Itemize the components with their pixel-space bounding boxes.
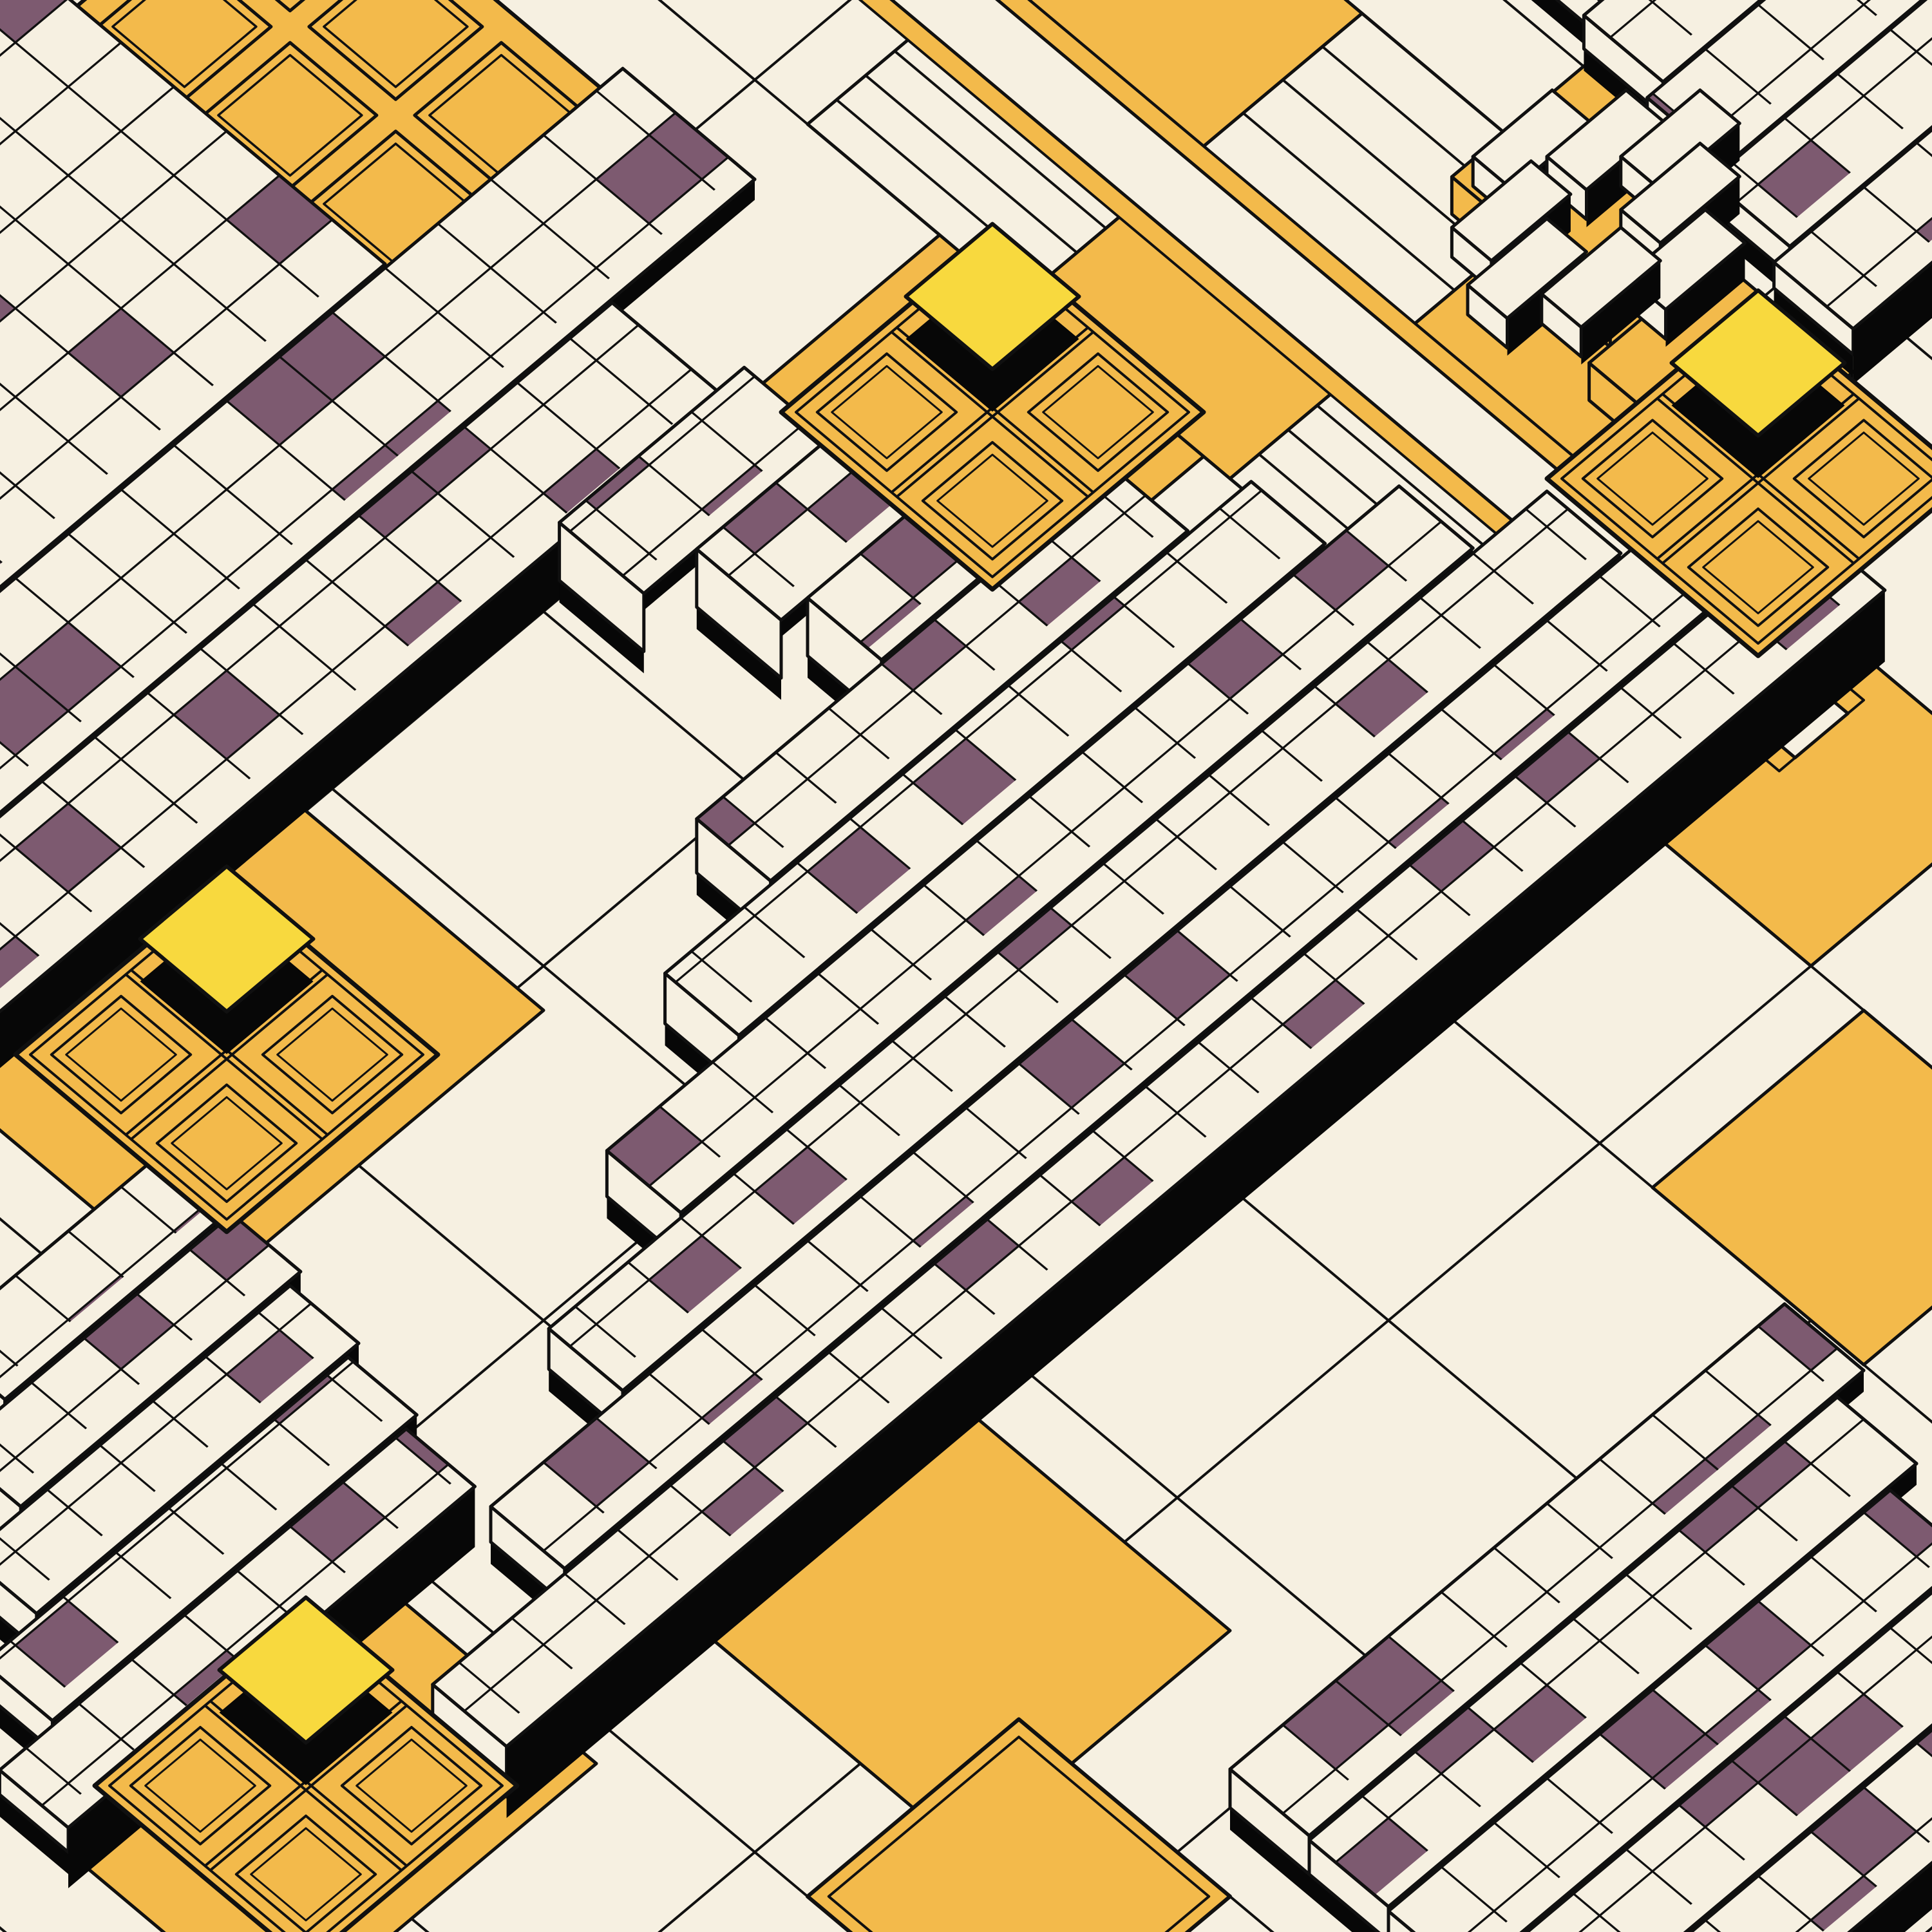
isometric-artwork [0,0,1932,1932]
artwork-canvas [0,0,1932,1932]
